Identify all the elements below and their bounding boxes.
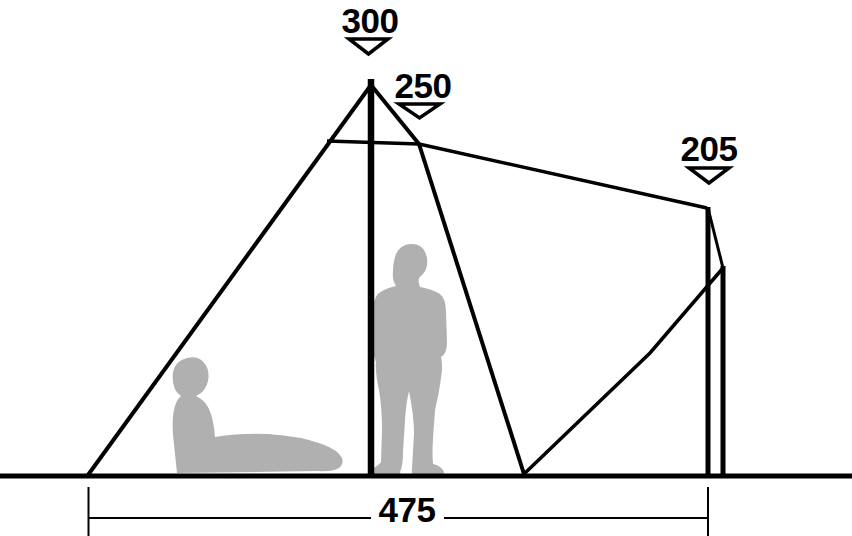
rear-fabric-edge [524, 268, 723, 474]
tent-left-slope [88, 85, 371, 475]
down-arrow-icon [689, 168, 729, 183]
rear-pole-height-label: 205 [681, 131, 738, 166]
peak-height-label: 300 [342, 3, 399, 38]
canopy-height-label: 250 [395, 68, 452, 103]
floor-width-label: 475 [379, 492, 436, 527]
tent-dimension-diagram: 300 250 205 475 [0, 0, 852, 536]
standing-person-silhouette [370, 244, 447, 476]
ridge-line [419, 144, 707, 208]
down-arrow-icon [399, 104, 440, 118]
down-arrow-icon [349, 39, 388, 54]
sitting-person-silhouette [173, 357, 343, 473]
